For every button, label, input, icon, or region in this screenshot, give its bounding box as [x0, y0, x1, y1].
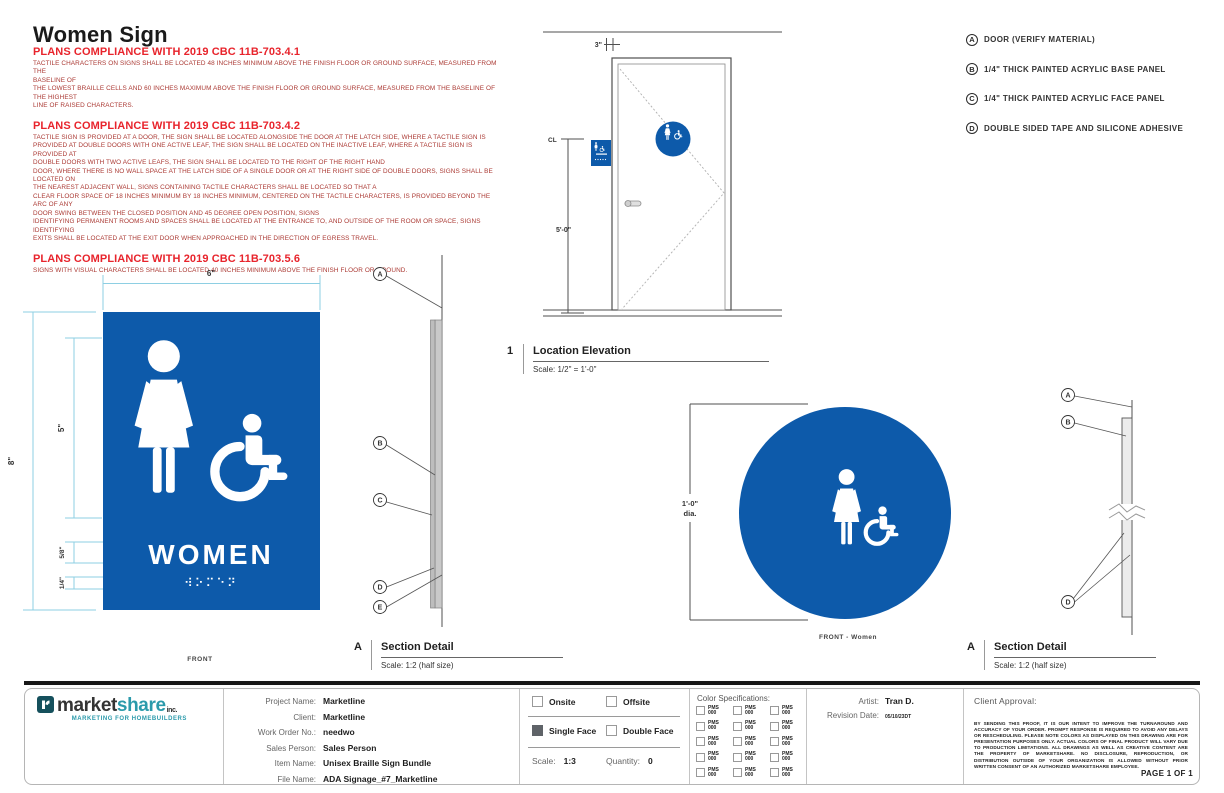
- callout-d-icon: D: [1062, 596, 1075, 609]
- legend-label: 1/4" THICK PAINTED ACRYLIC FACE PANEL: [984, 94, 1165, 103]
- project-info-value: Marketline: [323, 712, 365, 722]
- height-dim-label: 8": [7, 457, 16, 465]
- options-section: Onsite Offsite Single Face Double Face S…: [519, 689, 689, 784]
- pms-swatch-box[interactable]: [696, 768, 705, 777]
- page-number: PAGE 1 OF 1: [1141, 769, 1193, 778]
- pms-swatch: PMS000: [696, 721, 733, 732]
- callout-letter-icon: B: [966, 63, 978, 75]
- callout-a-icon: A: [374, 268, 387, 281]
- break-symbol: [1109, 504, 1147, 520]
- compliance-notes: PLANS COMPLIANCE WITH 2019 CBC 11B-703.4…: [33, 46, 505, 284]
- pms-swatch-box[interactable]: [696, 753, 705, 762]
- legend-row: B 1/4" THICK PAINTED ACRYLIC BASE PANEL: [966, 63, 1183, 76]
- pms-swatch-box[interactable]: [733, 737, 742, 746]
- pms-swatch-box[interactable]: [696, 737, 705, 746]
- section-detail-left-drawing: A B C D E: [340, 253, 570, 678]
- client-approval-heading: Client Approval:: [974, 696, 1037, 706]
- double-face-label: Double Face: [623, 726, 674, 736]
- pms-swatch: PMS000: [696, 767, 733, 778]
- project-info-label: Project Name:: [224, 697, 316, 706]
- svg-text:B: B: [1065, 420, 1070, 427]
- text-row-dim-label: 5/8": [59, 546, 66, 558]
- view-title: Section Detail: [994, 640, 1156, 658]
- color-specs-section: Color Specifications: PMS000 PMS000 PMS0…: [689, 689, 806, 784]
- offset-dim-label: 3": [595, 42, 602, 49]
- diameter-label-2: dia.: [684, 509, 697, 518]
- height-dimension: 8": [7, 312, 96, 610]
- front-view-label: FRONT: [187, 656, 212, 663]
- offsite-label: Offsite: [623, 697, 650, 707]
- pms-swatch: PMS000: [770, 752, 807, 763]
- project-info-label: Sales Person:: [224, 744, 316, 753]
- pms-swatch: PMS000: [733, 736, 770, 747]
- project-info-label: Item Name:: [224, 759, 316, 768]
- svg-text:D: D: [1065, 600, 1070, 607]
- double-face-checkbox[interactable]: [606, 725, 617, 736]
- pms-swatch: PMS000: [733, 721, 770, 732]
- women-circle-sign: [739, 407, 951, 619]
- svg-text:C: C: [377, 498, 382, 505]
- artist-label: Artist:: [807, 697, 879, 706]
- pms-swatch: PMS000: [733, 767, 770, 778]
- view-number: A: [958, 640, 984, 670]
- artist-value: Tran D.: [885, 696, 914, 706]
- pms-swatch: PMS000: [733, 752, 770, 763]
- color-specs-heading: Color Specifications:: [697, 694, 770, 703]
- revision-date-label: Revision Date:: [807, 711, 879, 720]
- callout-legend: A DOOR (VERIFY MATERIAL) B 1/4" THICK PA…: [966, 33, 1183, 151]
- door-handle-icon: [625, 201, 641, 207]
- section-detail-right-title: A Section Detail Scale: 1:2 (half size): [958, 640, 1156, 670]
- pms-swatch-box[interactable]: [733, 706, 742, 715]
- pms-swatch-box[interactable]: [770, 706, 779, 715]
- project-info-row: Client: Marketline: [224, 712, 519, 721]
- compliance-body: TACTILE SIGN IS PROVIDED AT A DOOR, THE …: [33, 134, 505, 244]
- width-dimension: 6": [103, 269, 320, 310]
- legend-label: DOUBLE SIDED TAPE AND SILICONE ADHESIVE: [984, 124, 1183, 133]
- project-info-row: File Name: ADA Signage_#7_Marketline: [224, 774, 519, 783]
- project-info-label: Work Order No.:: [224, 728, 316, 737]
- callout-c-icon: C: [374, 494, 387, 507]
- revision-date-value: 05/10/23DT: [885, 714, 911, 720]
- pms-swatch-box[interactable]: [770, 722, 779, 731]
- title-block-top-rule: [24, 681, 1200, 685]
- svg-text:D: D: [377, 585, 382, 592]
- project-info-row: Item Name: Unisex Braille Sign Bundle: [224, 758, 519, 767]
- compliance-heading: PLANS COMPLIANCE WITH 2019 CBC 11B-703.4…: [33, 46, 505, 58]
- svg-text:A: A: [1065, 393, 1070, 400]
- women-sign-front: WOMEN ⠺⠕⠍⠑⠝: [103, 312, 320, 610]
- width-dim-label: 6": [207, 269, 215, 278]
- project-info-section: Project Name: Marketline Client: Marketl…: [223, 689, 519, 784]
- callout-letter-icon: C: [966, 93, 978, 105]
- wall-braille-sign: [591, 140, 611, 166]
- view-scale: Scale: 1:2 (half size): [994, 661, 1156, 670]
- pms-swatch-box[interactable]: [733, 768, 742, 777]
- single-face-checkbox[interactable]: [532, 725, 543, 736]
- pms-swatch: PMS000: [696, 705, 733, 716]
- offsite-checkbox[interactable]: [606, 696, 617, 707]
- pictogram-dimension: 5": [57, 338, 102, 518]
- compliance-block: PLANS COMPLIANCE WITH 2019 CBC 11B-703.4…: [33, 120, 505, 244]
- legend-row: A DOOR (VERIFY MATERIAL): [966, 33, 1183, 46]
- scale-label: Scale:: [532, 756, 556, 766]
- pms-swatch: PMS000: [770, 721, 807, 732]
- circle-sign-label: FRONT - Women: [819, 634, 877, 641]
- callout-b-icon: B: [1062, 416, 1075, 429]
- logo-tagline: MARKETING FOR HOMEBUILDERS: [59, 716, 187, 722]
- artist-section: Artist: Tran D. Revision Date: 05/10/23D…: [806, 689, 963, 784]
- logo-word-market: market: [57, 695, 117, 716]
- callout-e-icon: E: [374, 601, 387, 614]
- project-info-row: Project Name: Marketline: [224, 696, 519, 705]
- pms-swatch-box[interactable]: [770, 753, 779, 762]
- project-info-row: Work Order No.: needwo: [224, 727, 519, 736]
- braille-row-dim-label: 1/4": [59, 577, 66, 589]
- pms-swatch-box[interactable]: [770, 737, 779, 746]
- front-view-drawing: 6" 8" 5" 5/8" 1/4": [0, 258, 330, 670]
- door-elevation-drawing: 3" CL 5'-0": [540, 25, 785, 325]
- sign-braille: ⠺⠕⠍⠑⠝: [184, 576, 238, 590]
- sign-text: WOMEN: [148, 539, 273, 570]
- offset-dimension: 3": [595, 38, 620, 51]
- pms-swatch-box[interactable]: [733, 722, 742, 731]
- project-info-label: File Name:: [224, 775, 316, 784]
- quantity-value: 0: [648, 756, 653, 766]
- approval-section: Client Approval: BY SENDING THIS PROOF, …: [963, 689, 1201, 784]
- scale-value: 1:3: [564, 756, 576, 766]
- pms-swatch-box[interactable]: [770, 768, 779, 777]
- project-info-label: Client:: [224, 713, 316, 722]
- project-info-value: needwo: [323, 727, 355, 737]
- callout-a-icon: A: [1062, 389, 1075, 402]
- circle-sign-drawing: 1'-0" dia. FRONT - Women: [655, 390, 970, 655]
- logo-suffix: inc.: [167, 707, 177, 714]
- pms-swatch: PMS000: [696, 752, 733, 763]
- callout-letter-icon: A: [966, 34, 978, 46]
- door-circle-sign: [656, 122, 691, 157]
- pms-swatch-box[interactable]: [696, 722, 705, 731]
- project-info-value: Sales Person: [323, 743, 376, 753]
- callout-d-icon: D: [374, 581, 387, 594]
- project-info-value: Unisex Braille Sign Bundle: [323, 758, 431, 768]
- onsite-checkbox[interactable]: [532, 696, 543, 707]
- svg-text:B: B: [377, 441, 382, 448]
- svg-text:E: E: [378, 605, 383, 612]
- section-detail-left-title: A Section Detail Scale: 1:2 (half size): [345, 640, 563, 670]
- marketshare-logo-icon: [37, 696, 54, 713]
- legend-row: D DOUBLE SIDED TAPE AND SILICONE ADHESIV…: [966, 122, 1183, 135]
- title-block: marketshareinc. MARKETING FOR HOMEBUILDE…: [24, 688, 1200, 785]
- project-info-value: Marketline: [323, 696, 365, 706]
- view-scale: Scale: 1:2 (half size): [381, 661, 563, 670]
- onsite-label: Onsite: [549, 697, 575, 707]
- compliance-body: TACTILE CHARACTERS ON SIGNS SHALL BE LOC…: [33, 60, 505, 111]
- sign-panel-section: [431, 320, 443, 608]
- svg-text:A: A: [377, 272, 382, 279]
- logo-word-share: share: [117, 695, 166, 716]
- proof-sheet: Women Sign PLANS COMPLIANCE WITH 2019 CB…: [0, 0, 1224, 793]
- section-detail-right-drawing: A B D: [1040, 383, 1224, 645]
- quantity-label: Quantity:: [606, 756, 640, 766]
- legend-label: DOOR (VERIFY MATERIAL): [984, 35, 1095, 44]
- pictogram-dim-label: 5": [57, 424, 66, 432]
- single-face-label: Single Face: [549, 726, 596, 736]
- view-number: A: [345, 640, 371, 670]
- pms-swatch: PMS000: [770, 767, 807, 778]
- pms-swatch-box[interactable]: [733, 753, 742, 762]
- pms-swatch: PMS000: [770, 705, 807, 716]
- divider: [528, 747, 680, 748]
- callout-b-icon: B: [374, 437, 387, 450]
- callout-letter-icon: D: [966, 122, 978, 134]
- pms-swatch: PMS000: [696, 736, 733, 747]
- page-title: Women Sign: [33, 22, 168, 48]
- legend-row: C 1/4" THICK PAINTED ACRYLIC FACE PANEL: [966, 92, 1183, 105]
- compliance-block: PLANS COMPLIANCE WITH 2019 CBC 11B-703.4…: [33, 46, 505, 111]
- project-info-value: ADA Signage_#7_Marketline: [323, 774, 437, 784]
- pms-swatch-box[interactable]: [696, 706, 705, 715]
- mount-height-label: 5'-0": [556, 227, 571, 234]
- pms-swatch: PMS000: [770, 736, 807, 747]
- pms-swatch: PMS000: [733, 705, 770, 716]
- legend-label: 1/4" THICK PAINTED ACRYLIC BASE PANEL: [984, 65, 1166, 74]
- diameter-label-1: 1'-0": [682, 499, 699, 508]
- divider: [528, 716, 680, 717]
- project-info-row: Sales Person: Sales Person: [224, 743, 519, 752]
- compliance-heading: PLANS COMPLIANCE WITH 2019 CBC 11B-703.4…: [33, 120, 505, 132]
- company-section: marketshareinc. MARKETING FOR HOMEBUILDE…: [25, 689, 223, 784]
- centerline-label: CL: [548, 137, 557, 144]
- door: [612, 58, 731, 310]
- view-title: Section Detail: [381, 640, 563, 658]
- approval-fine-print: BY SENDING THIS PROOF, IT IS OUR INTENT …: [974, 721, 1188, 770]
